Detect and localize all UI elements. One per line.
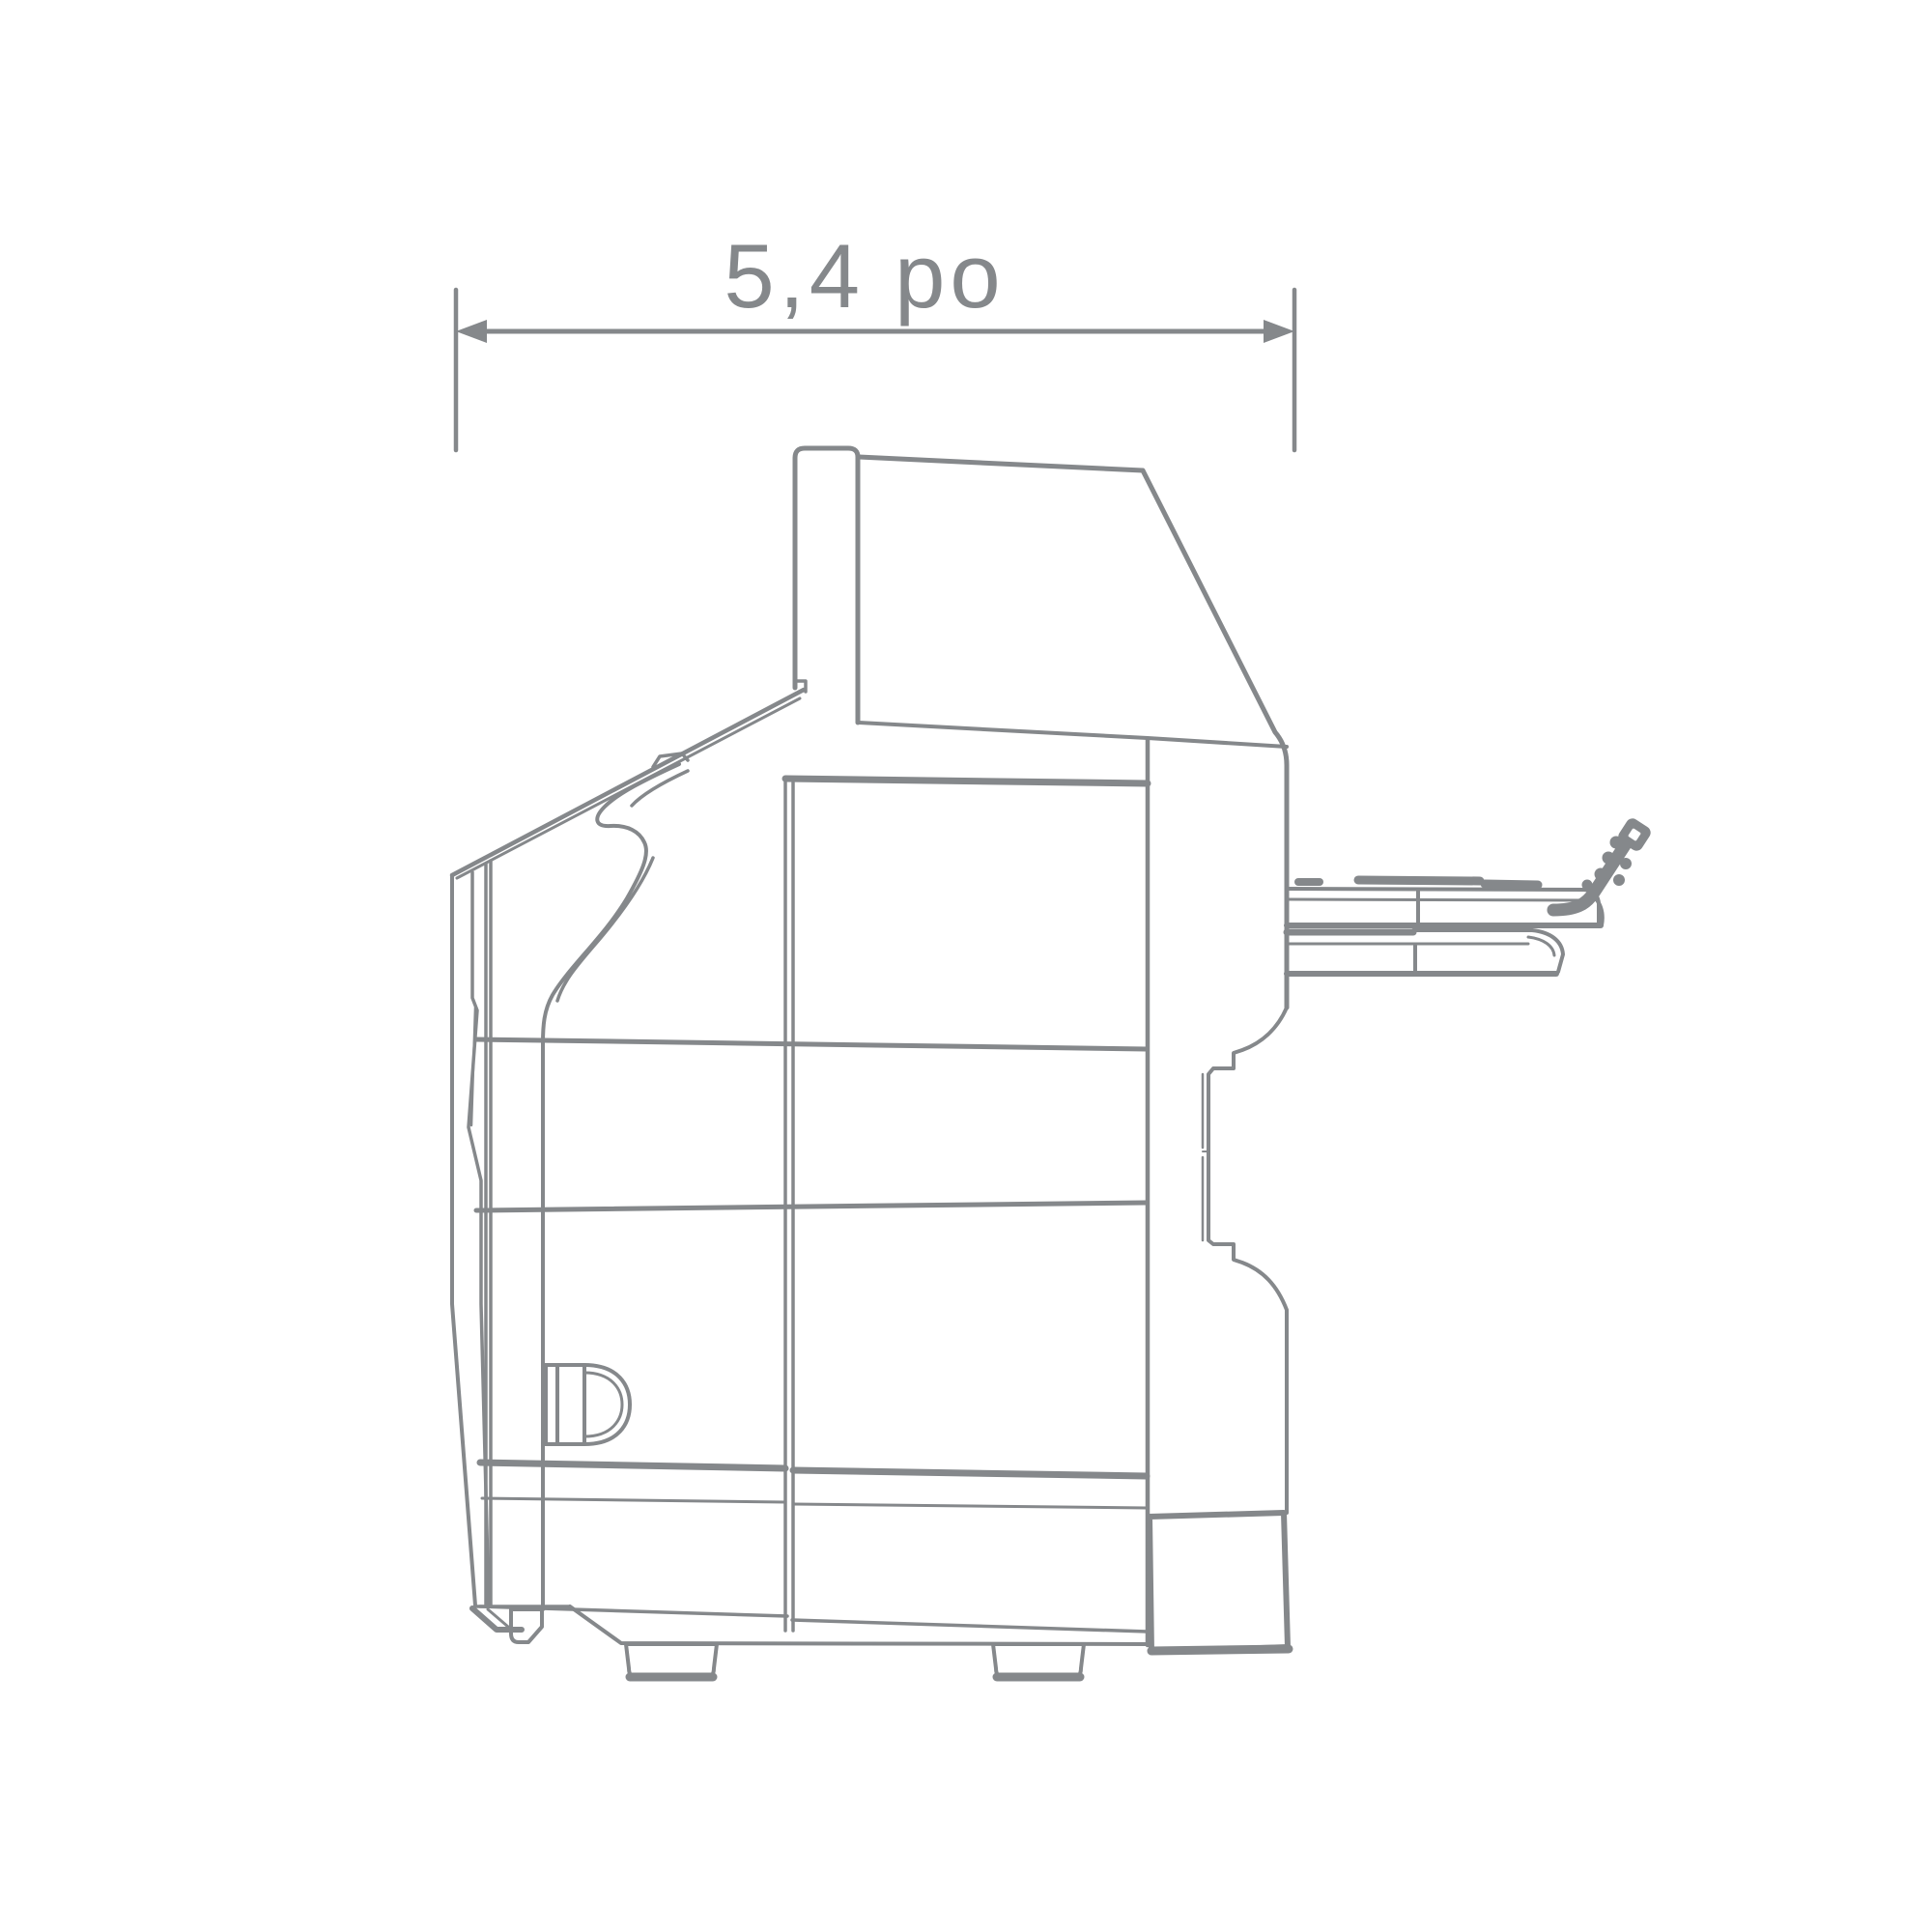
product-side-view-diagram: 5,4 po <box>0 0 1932 1932</box>
dimension-label: 5,4 po <box>724 225 1005 327</box>
top-left-slope <box>452 690 804 878</box>
machine-outline <box>452 448 1653 1679</box>
left-panel-strip <box>452 861 491 1606</box>
top-and-right-silhouette <box>858 457 1287 1645</box>
base-and-bottom <box>472 1606 1148 1644</box>
body-seams <box>476 1039 1147 1508</box>
tray-top-tab <box>1485 884 1538 885</box>
foot-left <box>626 1644 717 1679</box>
foot-right <box>993 1644 1084 1679</box>
spout <box>546 1365 630 1444</box>
arrowhead-left-icon <box>456 320 487 343</box>
drawing-canvas: 5,4 po <box>0 0 1932 1932</box>
arrowhead-right-icon <box>1264 320 1294 343</box>
handle-column <box>795 448 858 723</box>
handle-groove-curve <box>543 764 688 1609</box>
dimension-annotation: 5,4 po <box>456 225 1294 450</box>
lever-clip <box>1553 816 1653 925</box>
bottom-right-panel <box>1150 1513 1289 1652</box>
tray-top-tab <box>1358 880 1480 881</box>
drip-tray <box>1287 880 1601 974</box>
door-top-edge <box>785 779 1148 783</box>
side-recess <box>1203 1008 1287 1513</box>
base-stub <box>511 1609 542 1642</box>
